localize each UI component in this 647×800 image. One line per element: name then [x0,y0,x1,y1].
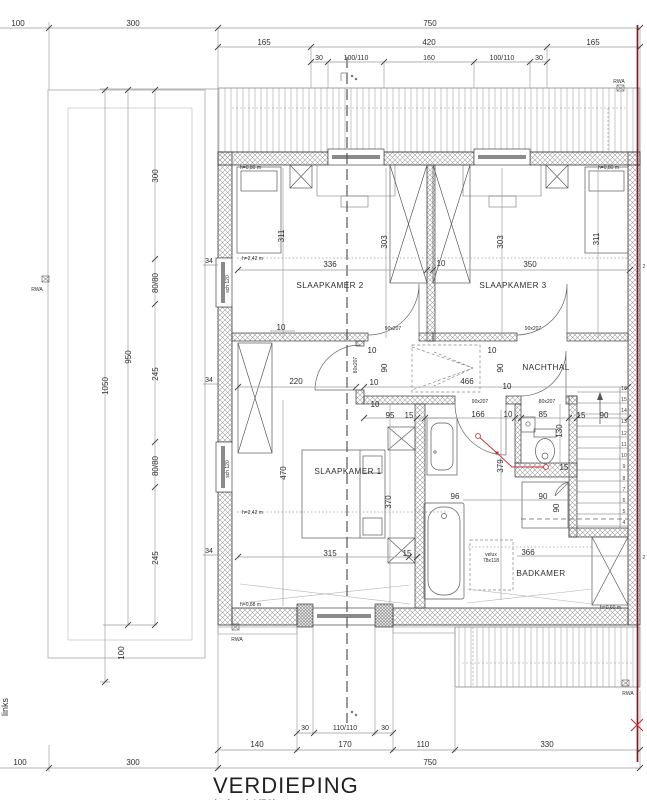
dim-label: 15 [560,463,569,472]
dim-label: 30 [315,55,323,62]
dim-label: 110/110 [333,725,357,732]
dim-label: 110 [417,740,430,749]
dim-label: 140 [250,740,264,749]
svg-text:15: 15 [621,397,627,403]
wall-thickness-label: 34 [205,258,213,265]
dim-label: 100 [11,19,25,28]
dim-label: 160 [423,55,435,62]
toilet-bowl [536,439,555,464]
section-edge-label: 2 [643,555,646,561]
dim-label: 10 [371,400,380,409]
dim-label: 15 [405,411,414,420]
dim-label: 311 [277,229,286,242]
stair-numbers: 16 15 14 13 12 11 10 9 8 7 6 5 4 [621,386,627,526]
dim-label: 10 [488,346,497,355]
side-label: links [0,698,10,717]
door-size-label: 90x207 [472,399,489,405]
rwa-label: RWA [31,287,43,293]
dim-label: 95 [386,411,395,420]
dim-label: 330 [540,740,554,749]
room-label-slaapkamer2: SLAAPKAMER 2 [296,281,363,290]
svg-text:16: 16 [621,386,627,392]
door-size-label: 90x207 [385,326,402,332]
toilet-tank [534,429,556,437]
dim-label: 100 [117,646,126,660]
dim-label: 366 [521,548,535,557]
svg-text:7: 7 [623,487,626,493]
svg-text:9: 9 [623,464,626,470]
dim-label: 170 [338,740,352,749]
height-label: h=0,80 m [598,165,619,171]
roof-top [218,88,640,152]
dim-label: 85 [539,410,548,419]
dim-label: 245 [151,551,160,565]
dim-label: 220 [289,377,303,386]
dim-label: 245 [151,367,160,381]
dim-label: 466 [460,377,474,386]
height-label: h=0,80 m [240,165,261,171]
dim-label: 300 [151,169,160,183]
height-label: h=2,42 m [242,510,263,516]
gutter-strips-bottom [218,627,455,634]
dim-label: 350 [523,260,537,269]
dim-label: 15 [577,411,586,420]
room-label-badkamer: BADKAMER [516,569,565,578]
wall-thickness-label: 34 [205,377,213,384]
dim-label: 300 [126,758,140,767]
door-size-label: 80x207 [539,399,556,405]
rwa-labels: RWA RWA RWA RWA [31,79,634,697]
door-size-label: 80x207 [353,357,359,374]
svg-text:8: 8 [623,476,626,482]
dim-label: 10 [277,323,286,332]
dim-label: 370 [384,495,393,509]
dim-label: 90 [380,363,389,372]
roof-bottom-right [455,627,640,687]
velux-label: 78x118 [483,558,499,564]
dim-label: 166 [471,410,485,419]
dim-label: 90 [539,492,548,501]
dim-label: 80/80 [151,455,160,476]
svg-text:4: 4 [623,520,626,526]
dim-label: 303 [380,235,389,249]
height-label: h=2,42 m [242,256,263,262]
left-dimension-labels: 300 80/80 245 80/80 245 950 1050 100 34 … [101,169,213,660]
svg-text:10: 10 [621,453,627,459]
dim-label: 30 [535,55,543,62]
wall-thickness-label: 34 [205,548,213,555]
svg-text:14: 14 [621,408,627,414]
dim-label: 311 [592,232,601,245]
dim-label: 950 [124,350,133,364]
left-adjacent-volume [48,90,205,658]
drawing-title: VERDIEPING [213,773,359,798]
dim-label: 15 [403,549,412,558]
dim-label: 1050 [101,377,110,395]
velux-marker [470,540,513,590]
dim-label: 165 [586,38,600,47]
dim-label: 379 [496,459,505,473]
plan-dimension-labels: 336 10 350 311 303 303 311 10 220 10 90 … [277,229,609,558]
dim-label: 96 [451,492,460,501]
wc-basin [521,417,535,432]
dim-label: 750 [423,19,437,28]
room-label-slaapkamer1: SLAAPKAMER 1 [314,467,381,476]
dim-label: 303 [496,235,505,249]
svg-text:11: 11 [621,442,626,448]
dim-label: 130 [555,424,564,438]
dim-label: 30 [301,725,309,732]
door-size-label: 90x207 [525,326,542,332]
rwa-label: RWA [622,691,634,697]
room-label-slaapkamer3: SLAAPKAMER 3 [479,281,546,290]
dim-label: 470 [279,466,288,480]
dim-label: 100/110 [344,55,369,62]
dim-label: 10 [370,378,379,387]
top-dimension-labels: 100 300 750 165 420 165 30 100/110 160 1… [11,19,600,62]
bathtub [424,503,464,599]
dim-label: 336 [323,260,337,269]
dim-label: 10 [437,259,446,268]
dim-label: 30 [381,725,389,732]
svg-text:12: 12 [621,431,627,437]
vanity [427,418,457,475]
dim-label: 420 [422,38,436,47]
dim-label: 315 [323,549,337,558]
floorplan-drawing: 100 300 750 165 420 165 30 100/110 160 1… [0,0,647,800]
edge-section-marks: 2 2 [643,264,646,561]
bottom-dimension-labels: 30 110/110 30 140 170 110 330 100 300 75… [13,725,554,767]
dim-label: 80/80 [151,272,160,293]
svg-text:6: 6 [623,498,626,504]
shower-tray [522,482,568,528]
dim-label: 10 [503,382,512,391]
section-edge-label: 2 [643,264,646,270]
height-label: h=0,88 m [240,602,261,608]
dim-label: 90 [600,411,609,420]
dim-label: 10 [504,410,513,419]
dim-label: 90 [552,503,561,512]
floorplan-page: 100 300 750 165 420 165 30 100/110 160 1… [0,0,647,800]
dim-label: 165 [257,38,271,47]
rwa-label: RWA [231,637,243,643]
svg-text:13: 13 [621,419,627,425]
interior-walls [232,165,628,608]
dim-label: 750 [423,758,437,767]
room-label-nachthal: NACHTHAL [522,363,569,372]
svg-text:5: 5 [623,509,626,515]
height-label: h=0,60 m [600,605,621,611]
rwa-label: RWA [613,79,625,85]
stair-up-arrow [597,392,603,400]
window-size-label: sch 120 [225,275,231,293]
dim-label: 100 [13,758,27,767]
window-size-label: sch 120 [225,460,231,478]
dim-label: 10 [368,346,377,355]
dim-label: 300 [126,19,140,28]
dim-label: 100/110 [490,55,515,62]
dim-label: 90 [496,363,505,372]
